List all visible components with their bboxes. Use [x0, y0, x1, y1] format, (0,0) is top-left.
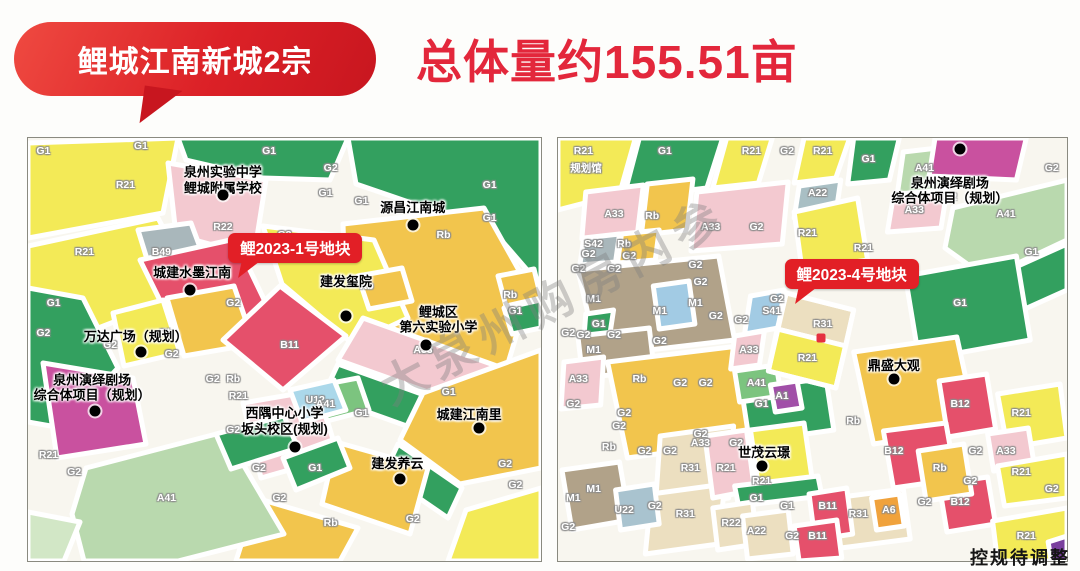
parcel-code-label: G2	[508, 479, 522, 491]
footer-note: 控规待调整	[970, 544, 1070, 570]
parcel-code-label: G2	[206, 373, 220, 385]
parcel-code-label: M1	[653, 305, 668, 317]
parcel-code-label: A41	[157, 492, 176, 504]
parcel-code-label: G2	[36, 327, 50, 339]
parcel-code-label: R31	[813, 318, 832, 330]
poi-label: 建发玺院	[320, 274, 372, 290]
parcel-code-label: G1	[354, 195, 368, 207]
parcel-code-label: G2	[663, 445, 677, 457]
poi-dot	[407, 219, 418, 230]
parcel-code-label: S41	[762, 305, 781, 317]
parcel-code-label: M1	[586, 293, 601, 305]
parcel-code-label: G2	[607, 263, 621, 275]
parcel-code-label: R21	[854, 242, 873, 254]
parcel-code-label: G2	[272, 492, 286, 504]
parcel-code-label: G1	[47, 297, 61, 309]
parcel-code-label: A1	[775, 390, 788, 402]
parcel-code-label: Rb	[617, 238, 631, 250]
parcel-code-label: B49	[152, 246, 171, 258]
parcel-code-label: R21	[116, 179, 135, 191]
parcel-code-label: A33	[604, 208, 623, 220]
poi-label: 源昌江南城	[380, 200, 445, 216]
parcel-code-label: R21	[229, 390, 248, 402]
featured-parcel-marker	[817, 334, 826, 343]
page-title: 总体量约155.51亩	[416, 26, 798, 92]
parcel-code-label: Rb	[437, 229, 451, 241]
parcel-code-label: Rb	[602, 441, 616, 453]
parcel-code-label: Rb	[933, 462, 947, 474]
parcel-code-label: G2	[785, 530, 799, 542]
poi-dot	[474, 422, 485, 433]
parcel-code-label: G1	[262, 145, 276, 157]
parcel-code-label: G2	[770, 293, 784, 305]
parcel-code-label: G2	[571, 263, 585, 275]
parcel-code-label: A33	[701, 221, 720, 233]
parcel-code-label: G2	[968, 445, 982, 457]
poi-dot	[756, 460, 767, 471]
parcel-code-label: 规划馆	[570, 160, 602, 175]
parcel-code-label: G2	[638, 445, 652, 457]
parcel-code-label: G2	[252, 462, 266, 474]
parcel-code-label: U22	[615, 504, 634, 516]
parcel-code-label: R21	[798, 227, 817, 239]
parcel-code-label: R22	[213, 221, 232, 233]
parcel-code-label: G2	[1045, 162, 1059, 174]
poi-label: 城建江南里	[437, 407, 502, 423]
poi-label: 万达广场（规划）	[84, 329, 188, 345]
poi-label: 西隅中心小学 坂头校区(规划)	[241, 406, 328, 437]
parcel-code-label: G2	[734, 314, 748, 326]
parcel-code-label: G1	[658, 145, 672, 157]
parcel-code-label: A41	[747, 377, 766, 389]
zoning-map-left: G1G1G1G2G1G1G1G1RbR21R21B49R22G2G1G2G2Rb…	[27, 137, 542, 562]
parcel-code-label: G2	[653, 335, 667, 347]
map-labels-left: G1G1G1G2G1G1G1G1RbR21R21B49R22G2G1G2G2Rb…	[28, 138, 541, 561]
parcel-code-label: G1	[953, 297, 967, 309]
parcel-code-label: G2	[648, 500, 662, 512]
poi-dot	[394, 473, 405, 484]
parcel-code-label: A33	[739, 344, 758, 356]
parcel-code-label: A22	[747, 525, 766, 537]
parcel-code-label: G2	[607, 329, 621, 341]
parcel-code-label: G1	[508, 305, 522, 317]
poi-dot	[289, 441, 300, 452]
parcel-code-label: Rb	[846, 415, 860, 427]
parcel-code-label: R21	[742, 145, 761, 157]
parcel-code-label: G1	[861, 153, 875, 165]
parcel-code-label: G2	[694, 428, 708, 440]
parcel-code-label: B11	[280, 339, 299, 351]
parcel-code-label: G2	[576, 329, 590, 341]
parcel-code-label: R31	[681, 462, 700, 474]
parcel-code-label: A41	[996, 208, 1015, 220]
parcel-code-label: G1	[319, 187, 333, 199]
parcel-code-label: G1	[483, 212, 497, 224]
parcel-code-label: G2	[749, 221, 763, 233]
parcel-code-label: G2	[226, 424, 240, 436]
parcel-code-label: R21	[39, 449, 58, 461]
parcel-code-label: Rb	[324, 517, 338, 529]
parcel-callout-left: 鲤2023-1号地块	[228, 233, 362, 263]
parcel-code-label: G2	[566, 398, 580, 410]
parcel-code-label: G2	[694, 276, 708, 288]
parcel-code-label: G2	[226, 297, 240, 309]
parcel-code-label: R21	[1012, 466, 1031, 478]
parcel-code-label: R21	[574, 145, 593, 157]
poi-label: 城建水墨江南	[153, 266, 231, 282]
poi-dot	[955, 143, 966, 154]
parcel-code-label: G2	[699, 377, 713, 389]
map-labels-right: R21规划馆G1R21G2R21G1A41A33A22G2G2A41G1A33R…	[558, 138, 1067, 561]
parcel-code-label: Rb	[645, 210, 659, 222]
banner-label: 鲤城江南新城2宗	[78, 37, 313, 81]
parcel-code-label: A22	[808, 187, 827, 199]
parcel-code-label: R31	[676, 508, 695, 520]
parcel-code-label: A41	[915, 162, 934, 174]
parcel-code-label: M1	[688, 297, 703, 309]
poi-dot	[217, 190, 228, 201]
parcel-code-label: G2	[780, 145, 794, 157]
poi-dot	[135, 346, 146, 357]
parcel-code-label: B12	[950, 398, 969, 410]
parcel-code-label: G2	[67, 466, 81, 478]
zoning-map-right: R21规划馆G1R21G2R21G1A41A33A22G2G2A41G1A33R…	[557, 137, 1068, 562]
parcel-code-label: R21	[813, 145, 832, 157]
poi-label: 鲤城区 第六实验小学	[399, 304, 477, 335]
parcel-code-label: G2	[561, 327, 575, 339]
parcel-code-label: R21	[752, 475, 771, 487]
poi-dot	[89, 405, 100, 416]
title-banner: 鲤城江南新城2宗	[14, 22, 376, 96]
parcel-code-label: R21	[75, 246, 94, 258]
parcel-code-label: G2	[617, 407, 631, 419]
parcel-code-label: B11	[808, 530, 827, 542]
poi-dot	[184, 285, 195, 296]
parcel-code-label: Rb	[226, 373, 240, 385]
parcel-code-label: M1	[586, 344, 601, 356]
parcel-code-label: Rb	[632, 373, 646, 385]
parcel-code-label: G2	[406, 513, 420, 525]
parcel-code-label: G2	[582, 248, 596, 260]
poi-label: 世茂云璟	[738, 445, 790, 461]
parcel-code-label: G1	[1024, 246, 1038, 258]
poi-dot	[888, 374, 899, 385]
parcel-code-label: G2	[612, 420, 626, 432]
parcel-code-label: G2	[1045, 483, 1059, 495]
poi-label: 鼎盛大观	[868, 359, 920, 375]
parcel-code-label: G1	[592, 318, 606, 330]
parcel-code-label: G2	[688, 259, 702, 271]
parcel-code-label: G1	[308, 462, 322, 474]
parcel-code-label: R21	[1017, 530, 1036, 542]
parcel-code-label: G1	[780, 500, 794, 512]
parcel-code-label: G2	[963, 475, 977, 487]
parcel-code-label: R21	[798, 352, 817, 364]
parcel-code-label: R31	[849, 508, 868, 520]
poi-label: 建发养云	[371, 456, 423, 472]
parcel-code-label: G2	[917, 496, 931, 508]
parcel-code-label: B11	[818, 500, 837, 512]
parcel-code-label: G1	[354, 407, 368, 419]
parcel-code-label: G2	[673, 377, 687, 389]
parcel-code-label: G2	[709, 310, 723, 322]
parcel-code-label: R22	[721, 517, 740, 529]
parcel-code-label: G1	[36, 145, 50, 157]
parcel-code-label: G2	[324, 162, 338, 174]
parcel-code-label: M1	[586, 483, 601, 495]
parcel-code-label: G1	[749, 492, 763, 504]
poi-label: 泉州演绎剧场 综合体项目（规划）	[891, 175, 1008, 206]
poi-dot	[341, 310, 352, 321]
parcel-code-label: G2	[622, 250, 636, 262]
parcel-code-label: G2	[165, 348, 179, 360]
parcel-code-label: A6	[882, 504, 895, 516]
parcel-code-label: G1	[755, 398, 769, 410]
parcel-code-label: G2	[561, 521, 575, 533]
parcel-code-label: A33	[996, 445, 1015, 457]
parcel-code-label: A33	[569, 373, 588, 385]
poi-label: 泉州演绎剧场 综合体项目（规划）	[34, 372, 151, 403]
parcel-code-label: G1	[442, 386, 456, 398]
parcel-code-label: G1	[134, 140, 148, 152]
parcel-callout-right: 鲤2023-4号地块	[785, 259, 919, 289]
parcel-code-label: R21	[1012, 407, 1031, 419]
poi-dot	[420, 340, 431, 351]
parcel-code-label: B12	[950, 496, 969, 508]
parcel-code-label: G1	[483, 179, 497, 191]
parcel-code-label: B12	[884, 445, 903, 457]
parcel-code-label: M1	[566, 492, 581, 504]
parcel-code-label: R21	[716, 462, 735, 474]
parcel-code-label: Rb	[503, 289, 517, 301]
parcel-code-label: G2	[498, 458, 512, 470]
